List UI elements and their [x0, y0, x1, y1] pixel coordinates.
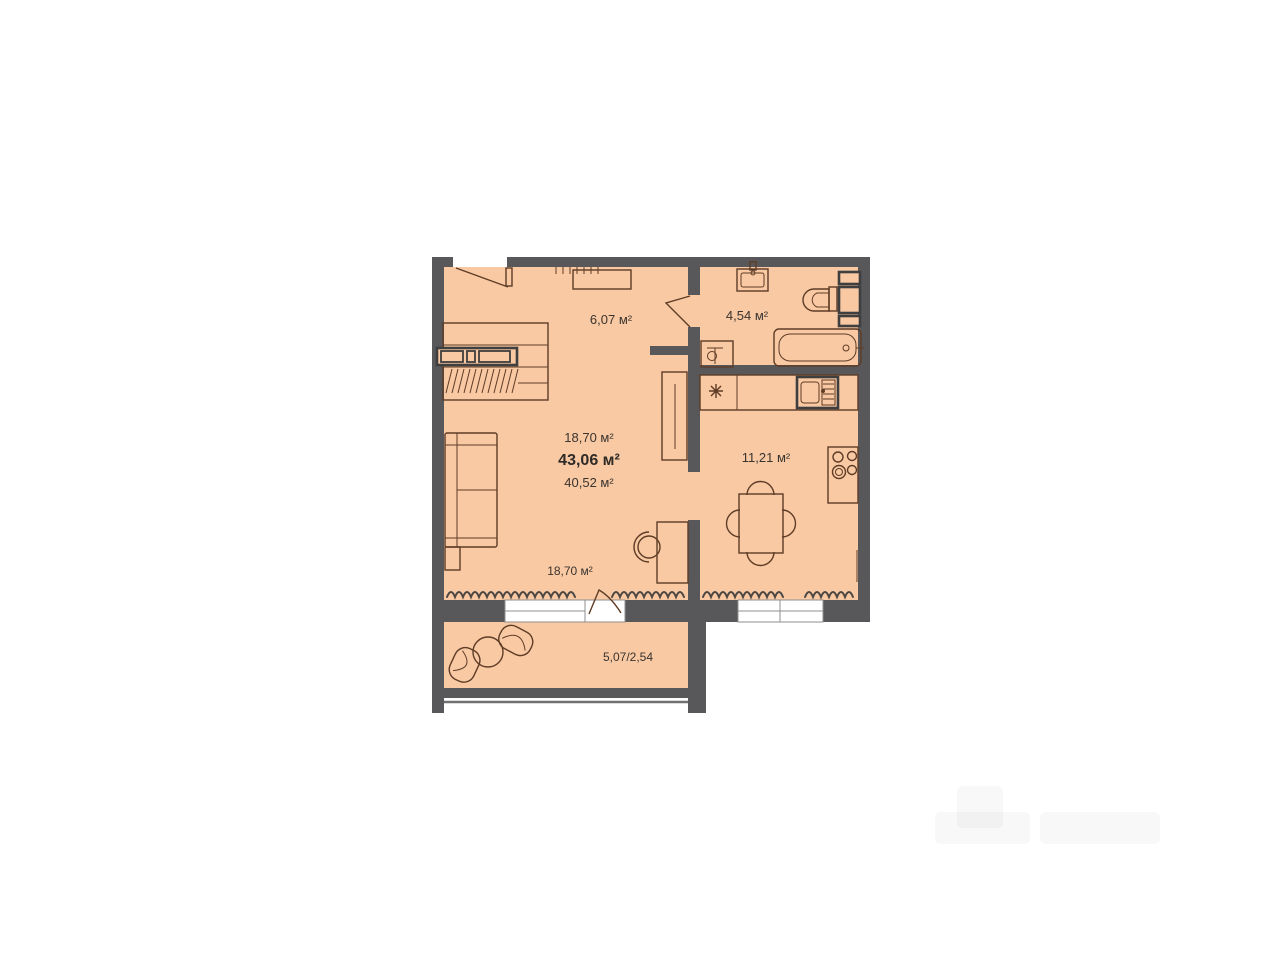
balcony-area-label: 5,07/2,54	[603, 650, 653, 664]
washer-shelf-bottom	[839, 316, 860, 326]
main-floor	[444, 267, 858, 600]
floor-plan-svg: 6,07 м² 4,54 м² 18,70 м² 43,06 м² 40,52 …	[0, 0, 1280, 960]
inner-wall-mid	[688, 327, 700, 472]
asterisk-symbol	[709, 384, 723, 398]
bottom-wall-b	[625, 600, 738, 622]
inner-wall-bottom	[688, 520, 700, 600]
kitchen-area-label: 11,21 м²	[742, 450, 791, 465]
inner-wall-top	[688, 267, 700, 295]
balcony-right-wall	[688, 622, 706, 713]
floor-plan: 6,07 м² 4,54 м² 18,70 м² 43,06 м² 40,52 …	[0, 0, 1280, 960]
hallway-area-label: 6,07 м²	[590, 312, 633, 327]
page: { "floorplan": { "type": "apartment-floo…	[0, 0, 1280, 960]
left-wall	[432, 257, 444, 713]
bathroom-area-label: 4,54 м²	[726, 308, 769, 323]
drawer-left	[441, 351, 463, 362]
bottom-wall-a	[432, 600, 505, 622]
living-room-area-label: 18,70 м²	[564, 430, 614, 445]
bottom-wall-c	[823, 600, 870, 622]
balcony-bottom-wall	[443, 688, 688, 698]
top-wall-right	[507, 257, 870, 267]
drawer-mid	[467, 351, 475, 362]
floor-fills	[444, 267, 858, 688]
drawer-right	[479, 351, 510, 362]
washing-machine	[839, 287, 860, 313]
usable-area-label: 40,52 м²	[564, 475, 614, 490]
living-room-bottom-area-label: 18,70 м²	[547, 564, 593, 578]
entrance-door-edge	[506, 268, 512, 286]
washer-shelf-top	[839, 272, 860, 284]
total-area-label: 43,06 м²	[558, 452, 620, 469]
hallway-stub-wall	[650, 346, 688, 355]
